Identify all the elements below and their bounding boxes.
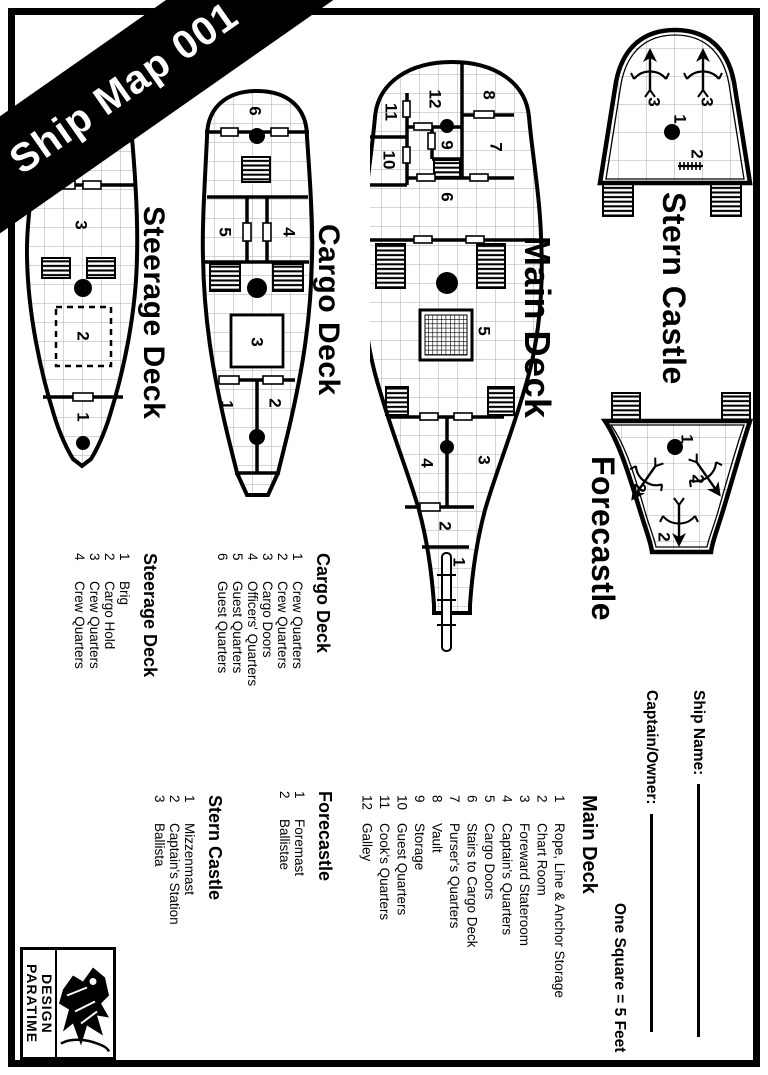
item-number: 3 [260, 553, 275, 581]
room-number: 1 [450, 557, 469, 566]
item-number: 2 [102, 553, 117, 581]
legend-item: 3Cargo Doors [260, 553, 275, 753]
item-number: 6 [215, 553, 230, 581]
item-name: Officers' Quarters [245, 581, 260, 686]
item-number: 1 [292, 791, 307, 819]
legend-item: 9Storage [411, 795, 429, 1075]
item-number: 2 [275, 553, 290, 581]
legend-item: 5Cargo Doors [481, 795, 499, 1075]
room-number: 7 [487, 142, 506, 151]
item-name: Cargo Doors [260, 581, 275, 658]
cargo-legend: Cargo Deck 1Crew Quarters 2Crew Quarters… [215, 553, 333, 753]
item-number: 3 [152, 795, 167, 823]
room-number: 2 [74, 331, 93, 340]
logo-line-2: DESIGN [39, 953, 54, 1054]
legend-item: 4Crew Quarters [72, 553, 87, 723]
paratime-design-logo: PARATIME DESIGN [20, 947, 116, 1060]
item-number: 1 [290, 553, 305, 581]
legend-item: 1Mizzenmast [182, 795, 197, 980]
logo-knight-art-icon [57, 950, 113, 1057]
ship-name-field: Ship Name: [675, 690, 722, 1060]
item-number: 1 [551, 795, 569, 823]
item-name: Cook's Quarters [377, 823, 392, 920]
logo-text: PARATIME DESIGN [23, 950, 57, 1057]
item-number: 9 [411, 795, 429, 823]
captain-owner-label: Captain/Owner: [643, 690, 660, 805]
legend-item: 6Guest Quarters [215, 553, 230, 753]
legend-item: 1Rope, Line & Anchor Storage [551, 795, 569, 1075]
page: 4 3 2 1 Steerage Deck [0, 0, 768, 1075]
mast-icon [664, 124, 680, 140]
item-name: Galley [360, 823, 375, 861]
item-number: 5 [230, 553, 245, 581]
legend-item: 10Guest Quarters [393, 795, 411, 1075]
item-name: Crew Quarters [275, 581, 290, 669]
main-deck-label: Main Deck [516, 236, 558, 419]
room-number: 11 [382, 103, 401, 121]
room-number: 12 [426, 90, 445, 109]
legend-item: 7Purser's Quarters [446, 795, 464, 1075]
mast-icon [440, 440, 454, 454]
ship-name-label: Ship Name: [690, 690, 707, 775]
item-number: 2 [167, 795, 182, 823]
room-number: 2 [689, 474, 708, 483]
legend-item: 2Crew Quarters [275, 553, 290, 753]
forecastle-legend: Forecastle 1Foremast 2Ballistae [277, 791, 335, 931]
item-number: 4 [245, 553, 260, 581]
stairs-icon [612, 393, 750, 420]
room-number: 1 [671, 114, 690, 123]
item-number: 2 [533, 795, 551, 823]
room-number: 1 [74, 412, 93, 421]
mast-icon [440, 119, 454, 133]
item-name: Chart Room [535, 823, 550, 896]
captain-owner-blank-line [650, 814, 653, 1032]
item-name: Cargo Hold [102, 581, 117, 649]
item-name: Guest Quarters [395, 823, 410, 915]
cargo-deck-label: Cargo Deck [311, 224, 345, 396]
logo-line-1: PARATIME [24, 953, 39, 1054]
item-number: 5 [481, 795, 499, 823]
item-name: Foreward Stateroom [517, 823, 532, 946]
scale-note: One Square = 5 Feet [610, 903, 628, 1063]
legend-item: 11Cook's Quarters [376, 795, 394, 1075]
item-name: Foremast [292, 819, 307, 876]
cargo-grate-icon [420, 310, 472, 360]
item-name: Purser's Quarters [447, 823, 462, 928]
legend-title: Main Deck [577, 795, 600, 1075]
mast-icon [249, 429, 265, 445]
item-number: 4 [498, 795, 516, 823]
legend-item: 3Crew Quarters [87, 553, 102, 723]
legend-item: 12Galley [358, 795, 376, 1075]
mast-icon [247, 278, 267, 298]
legend-title: Stern Castle [204, 795, 225, 980]
steerage-legend: Steerage Deck 1Brig 2Cargo Hold 3Crew Qu… [72, 553, 160, 723]
stern-castle-legend: Stern Castle 1Mizzenmast 2Captain's Stat… [152, 795, 225, 980]
item-number: 3 [87, 553, 102, 581]
ship-name-blank-line [697, 784, 700, 1037]
item-number: 8 [428, 795, 446, 823]
room-number: 3 [698, 97, 717, 106]
legend-item: 3Ballista [152, 795, 167, 980]
legend-item: 1Brig [117, 553, 132, 723]
room-number: 1 [678, 434, 697, 443]
item-number: 11 [376, 795, 394, 823]
mast-icon [74, 279, 92, 297]
item-number: 7 [446, 795, 464, 823]
legend-item: 2Cargo Hold [102, 553, 117, 723]
legend-item: 4Captain's Quarters [498, 795, 516, 1075]
item-name: Captain's Quarters [500, 823, 515, 935]
mast-icon [436, 272, 458, 294]
item-number: 10 [393, 795, 411, 823]
item-name: Ballistae [277, 819, 292, 870]
item-name: Guest Quarters [215, 581, 230, 673]
room-number: 10 [380, 151, 399, 170]
room-number: 3 [72, 220, 91, 229]
item-number: 6 [463, 795, 481, 823]
item-name: Stairs to Cargo Deck [465, 823, 480, 948]
main-deck-legend: Main Deck 1Rope, Line & Anchor Storage 2… [358, 795, 600, 1075]
item-name: Brig [117, 581, 132, 605]
room-number: 6 [438, 192, 457, 201]
legend-item: 8Vault [428, 795, 446, 1075]
legend-title: Cargo Deck [312, 553, 333, 753]
item-number: 12 [358, 795, 376, 823]
room-number: 8 [480, 90, 499, 99]
item-name: Crew Quarters [87, 581, 102, 669]
item-name: Crew Quarters [290, 581, 305, 669]
item-number: 1 [117, 553, 132, 581]
stern-castle-plan: 3 3 1 2 [590, 20, 760, 220]
item-name: Mizzenmast [182, 823, 197, 895]
room-number: 2 [266, 398, 285, 407]
mast-icon [76, 436, 90, 450]
cargo-deck-plan: 6 5 4 3 1 2 [195, 85, 320, 505]
forecastle-label: Forecastle [584, 456, 621, 621]
legend-title: Forecastle [314, 791, 335, 931]
mast-icon [249, 128, 265, 144]
room-number: 9 [438, 140, 457, 149]
room-number: 4 [418, 458, 437, 468]
item-name: Rope, Line & Anchor Storage [552, 823, 567, 998]
item-name: Ballista [152, 823, 167, 867]
legend-item: 2Chart Room [533, 795, 551, 1075]
room-number: 3 [645, 97, 664, 106]
item-number: 2 [277, 791, 292, 819]
item-number: 1 [182, 795, 197, 823]
item-name: Storage [412, 823, 427, 870]
item-name: Captain's Station [167, 823, 182, 925]
legend-item: 2Captain's Station [167, 795, 182, 980]
steerage-deck-label: Steerage Deck [136, 206, 170, 419]
room-number: 5 [475, 326, 494, 335]
room-number: 2 [655, 532, 674, 541]
room-number: 5 [216, 227, 235, 236]
item-name: Cargo Doors [482, 823, 497, 900]
room-number: 2 [436, 521, 455, 530]
legend-item: 3Foreward Stateroom [516, 795, 534, 1075]
room-number: 6 [246, 106, 265, 115]
legend-title: Steerage Deck [139, 553, 160, 723]
legend-item: 6Stairs to Cargo Deck [463, 795, 481, 1075]
legend-item: 5Guest Quarters [230, 553, 245, 753]
item-name: Guest Quarters [230, 581, 245, 673]
room-number: 4 [280, 227, 299, 237]
item-name: Vault [430, 823, 445, 853]
item-number: 4 [72, 553, 87, 581]
legend-item: 1Foremast [292, 791, 307, 931]
item-number: 3 [516, 795, 534, 823]
captain-owner-field: Captain/Owner: [628, 690, 675, 1060]
legend-item: 1Crew Quarters [290, 553, 305, 753]
item-name: Crew Quarters [72, 581, 87, 669]
legend-item: 2Ballistae [277, 791, 292, 931]
legend-item: 4Officers' Quarters [245, 553, 260, 753]
ship-info-fields: Ship Name: Captain/Owner: [628, 690, 722, 1060]
stern-castle-label: Stern Castle [655, 192, 692, 385]
room-number: 3 [475, 455, 494, 464]
room-number: 2 [688, 149, 707, 158]
room-number: 3 [248, 337, 267, 346]
